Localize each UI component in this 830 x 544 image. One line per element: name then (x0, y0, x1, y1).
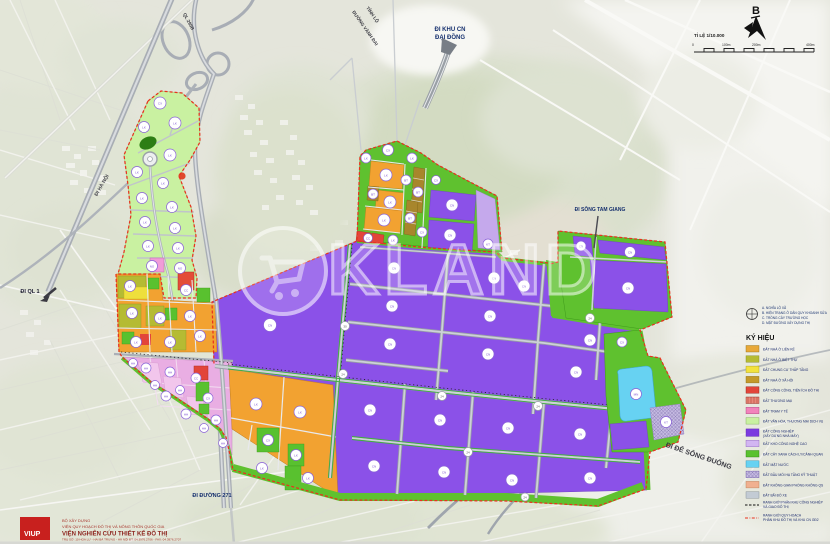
svg-text:ĐI SÔNG TAM GIANG: ĐI SÔNG TAM GIANG (575, 205, 626, 213)
svg-text:LK: LK (128, 284, 132, 288)
svg-text:LK: LK (260, 466, 264, 470)
svg-text:400m: 400m (806, 43, 815, 47)
svg-text:CX: CX (434, 178, 438, 182)
svg-text:CN: CN (442, 470, 446, 474)
svg-text:B: B (752, 5, 760, 17)
svg-text:NO: NO (178, 266, 183, 270)
svg-text:CN: CN (574, 370, 578, 374)
svg-text:0: 0 (692, 43, 694, 47)
svg-text:HH: HH (168, 370, 172, 374)
svg-text:LK: LK (254, 402, 258, 406)
svg-text:CN: CN (450, 203, 454, 207)
svg-text:CN: CN (388, 342, 392, 346)
svg-text:ĐẤT THƯƠNG MẠI: ĐẤT THƯƠNG MẠI (763, 399, 792, 403)
svg-text:LK: LK (168, 340, 172, 344)
svg-text:CN: CN (268, 323, 272, 327)
svg-text:NO: NO (150, 264, 155, 268)
svg-text:HH: HH (144, 366, 148, 370)
svg-text:CN: CN (368, 408, 372, 412)
svg-text:ĐẤT CÔNG CỘNG, TIỆN ÍCH ĐÔ THỊ: ĐẤT CÔNG CỘNG, TIỆN ÍCH ĐÔ THỊ (763, 388, 819, 393)
svg-text:LK: LK (364, 156, 368, 160)
svg-text:LK: LK (306, 476, 310, 480)
svg-text:LK: LK (388, 200, 392, 204)
svg-text:CN: CN (628, 250, 632, 254)
svg-text:CN: CN (578, 432, 582, 436)
svg-text:CX: CX (206, 396, 210, 400)
svg-text:LK: LK (130, 311, 134, 315)
svg-text:CN: CN (588, 476, 592, 480)
svg-text:VÀ GIAO ĐÔ THỊ: VÀ GIAO ĐÔ THỊ (763, 504, 789, 509)
svg-text:CN: CN (486, 352, 490, 356)
svg-text:CX: CX (386, 148, 390, 152)
svg-text:BỘ XÂY DỰNG: BỘ XÂY DỰNG (62, 518, 90, 523)
svg-text:ĐẤT ĐẦU MỐI HẠ TẦNG KỸ THUẬT: ĐẤT ĐẦU MỐI HẠ TẦNG KỸ THUẬT (763, 472, 817, 477)
svg-text:KÝ HIỆU: KÝ HIỆU (746, 333, 774, 342)
svg-text:BT: BT (371, 192, 375, 196)
svg-text:VIUP: VIUP (24, 531, 41, 538)
svg-text:ĐẤT MẶT NƯỚC: ĐẤT MẶT NƯỚC (763, 462, 789, 467)
svg-text:LK: LK (188, 314, 192, 318)
svg-text:CN: CN (626, 286, 630, 290)
svg-text:TRỤ SỞ: 10 HOA LƯ - HAI BÀ TRƯ: TRỤ SỞ: 10 HOA LƯ - HAI BÀ TRƯNG - HÀ NỘ… (62, 537, 181, 542)
svg-text:VIỆN NGHIÊN CỨU THIẾT KẾ ĐÔ TH: VIỆN NGHIÊN CỨU THIẾT KẾ ĐÔ THỊ (62, 530, 168, 538)
svg-text:24: 24 (466, 450, 470, 454)
svg-text:HH: HH (153, 383, 157, 387)
svg-text:ĐẤT VĂN HÓA, THƯƠNG MẠI DỊCH V: ĐẤT VĂN HÓA, THƯƠNG MẠI DỊCH VỤ (763, 419, 824, 424)
svg-text:CN: CN (372, 464, 376, 468)
svg-text:BT: BT (404, 178, 408, 182)
svg-text:HH: HH (178, 388, 182, 392)
svg-text:A. NGHĨA LỘ XÃ: A. NGHĨA LỘ XÃ (762, 305, 787, 310)
svg-text:ĐẠI ĐỒNG: ĐẠI ĐỒNG (435, 34, 465, 41)
svg-text:HH: HH (164, 394, 168, 398)
svg-text:HH: HH (214, 418, 218, 422)
svg-text:ĐẤT CÔNG NGHIỆP: ĐẤT CÔNG NGHIỆP (763, 428, 795, 433)
svg-text:24: 24 (440, 394, 444, 398)
svg-text:ĐI KHU CN: ĐI KHU CN (435, 27, 466, 33)
svg-text:CX: CX (266, 438, 270, 442)
svg-text:TỈ LỆ 1/10.000: TỈ LỆ 1/10.000 (694, 31, 725, 38)
svg-text:LK: LK (198, 334, 202, 338)
svg-text:LK: LK (410, 156, 414, 160)
svg-text:CN: CN (488, 314, 492, 318)
svg-text:ĐẤT CÂY XANH CÁCH LY/CẢNH QUAN: ĐẤT CÂY XANH CÁCH LY/CẢNH QUAN (763, 452, 824, 457)
svg-text:BT: BT (408, 216, 412, 220)
svg-text:KLAND: KLAND (328, 231, 601, 310)
svg-text:CX: CX (158, 101, 162, 105)
svg-text:ĐẤT NHÀ Ở LIỀN KẾ: ĐẤT NHÀ Ở LIỀN KẾ (763, 347, 796, 352)
svg-text:ĐẤT BÃI ĐỖ XE: ĐẤT BÃI ĐỖ XE (763, 493, 788, 498)
svg-text:RANH GIỚI QUY HOẠCH: RANH GIỚI QUY HOẠCH (763, 513, 802, 518)
svg-text:LK: LK (382, 218, 386, 222)
svg-text:ĐI QL 1: ĐI QL 1 (20, 289, 39, 295)
svg-text:LK: LK (176, 246, 180, 250)
svg-text:ĐI ĐƯỜNG 271: ĐI ĐƯỜNG 271 (192, 491, 231, 499)
svg-text:100m: 100m (722, 43, 731, 47)
svg-text:ĐẤT NHÀ Ở BIỆT THỰ: ĐẤT NHÀ Ở BIỆT THỰ (763, 357, 798, 362)
svg-text:BT: BT (416, 190, 420, 194)
svg-text:LK: LK (134, 340, 138, 344)
svg-text:ĐẤT KHÔNG GIAN PHÒNG KHÔNG QS: ĐẤT KHÔNG GIAN PHÒNG KHÔNG QS (763, 482, 824, 487)
svg-text:HH: HH (221, 441, 225, 445)
svg-text:CN: CN (588, 338, 592, 342)
svg-text:ĐẤT CHUNG CƯ THẤP TẦNG: ĐẤT CHUNG CƯ THẤP TẦNG (763, 368, 809, 372)
svg-text:LK: LK (384, 173, 388, 177)
svg-text:LK: LK (173, 226, 177, 230)
svg-text:KT: KT (664, 420, 668, 424)
svg-text:LK: LK (168, 153, 172, 157)
svg-text:LK: LK (294, 453, 298, 457)
svg-text:D. MẶT ĐƯỜNG XÂY DỰNG THỊ: D. MẶT ĐƯỜNG XÂY DỰNG THỊ (762, 320, 810, 325)
svg-text:ĐẤT KHO CÔNG NGHỆ CAO: ĐẤT KHO CÔNG NGHỆ CAO (763, 441, 807, 446)
svg-text:CN: CN (510, 478, 514, 482)
svg-text:LK: LK (143, 220, 147, 224)
svg-text:24: 24 (588, 316, 592, 320)
svg-text:HH: HH (184, 412, 188, 416)
svg-text:RANH GIỚI PHÂN KHU CÔNG NGHIỆP: RANH GIỚI PHÂN KHU CÔNG NGHIỆP (763, 500, 824, 505)
svg-text:24: 24 (536, 404, 540, 408)
svg-text:LK: LK (173, 121, 177, 125)
svg-text:(XÂY DỰNG NHÀ MÁY): (XÂY DỰNG NHÀ MÁY) (763, 434, 799, 438)
svg-text:24: 24 (341, 372, 345, 376)
svg-text:ĐẤT NHÀ Ở XÃ HỘI: ĐẤT NHÀ Ở XÃ HỘI (763, 377, 793, 382)
svg-text:LK: LK (158, 316, 162, 320)
svg-text:LK: LK (298, 410, 302, 414)
svg-text:24: 24 (523, 495, 527, 499)
svg-text:LK: LK (161, 181, 165, 185)
svg-text:30: 30 (343, 324, 347, 328)
svg-text:MN: MN (634, 392, 639, 396)
svg-text:PHÂN KHU ĐÔ THỊ VÀ KHU CN GĐ2: PHÂN KHU ĐÔ THỊ VÀ KHU CN GĐ2 (763, 517, 819, 522)
svg-text:LK: LK (142, 125, 146, 129)
svg-text:CN: CN (506, 426, 510, 430)
svg-text:HH: HH (131, 361, 135, 365)
svg-text:VIỆN QUY HOẠCH ĐÔ THỊ VÀ NÔNG: VIỆN QUY HOẠCH ĐÔ THỊ VÀ NÔNG THÔN QUỐC … (62, 524, 165, 529)
svg-text:CX: CX (620, 340, 624, 344)
svg-text:LK: LK (146, 244, 150, 248)
svg-text:C. TRỒNG CÂY TRƯỜNG HỌC: C. TRỒNG CÂY TRƯỜNG HỌC (762, 315, 809, 320)
svg-text:HH: HH (202, 426, 206, 430)
svg-text:200m: 200m (752, 43, 761, 47)
svg-text:LK: LK (140, 196, 144, 200)
svg-text:CN: CN (438, 418, 442, 422)
svg-text:B. HIỆN TRẠNG Ở DÂN QUY KHOANH: B. HIỆN TRẠNG Ở DÂN QUY KHOANH SỬA (762, 310, 828, 315)
svg-text:LK: LK (135, 170, 139, 174)
svg-text:ĐẤT TRẠM Y TẾ: ĐẤT TRẠM Y TẾ (763, 408, 789, 413)
svg-text:LK: LK (170, 205, 174, 209)
